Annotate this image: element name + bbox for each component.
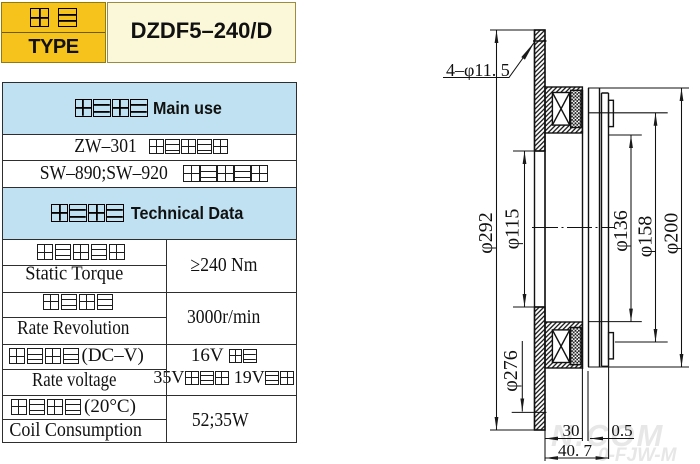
svg-text:φ276: φ276 bbox=[500, 350, 522, 392]
svg-text:φ115: φ115 bbox=[502, 209, 524, 250]
svg-text:0-FJW-M: 0-FJW-M bbox=[598, 445, 678, 464]
svg-text:0.5: 0.5 bbox=[611, 421, 632, 440]
svg-text:30: 30 bbox=[563, 421, 580, 440]
svg-text:40. 7: 40. 7 bbox=[558, 441, 593, 460]
svg-text:φ158: φ158 bbox=[635, 216, 657, 258]
svg-text:φ136: φ136 bbox=[610, 210, 632, 252]
svg-text:φ200: φ200 bbox=[661, 213, 683, 255]
svg-text:4–φ11. 5: 4–φ11. 5 bbox=[446, 60, 510, 80]
svg-text:φ292: φ292 bbox=[475, 212, 497, 254]
